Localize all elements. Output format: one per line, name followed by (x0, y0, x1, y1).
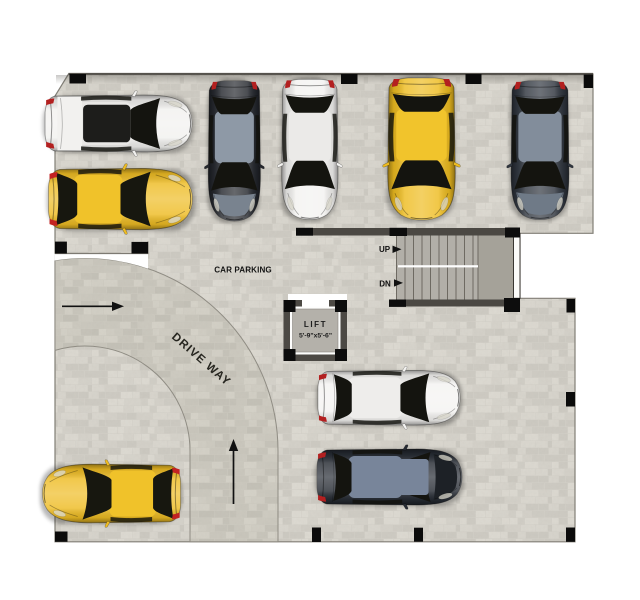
svg-text:LIFT: LIFT (304, 320, 327, 329)
svg-text:UP: UP (379, 245, 391, 254)
svg-text:DN: DN (379, 280, 391, 289)
svg-text:5'-9"x5'-6": 5'-9"x5'-6" (299, 333, 332, 340)
svg-text:CAR PARKING: CAR PARKING (214, 266, 272, 275)
